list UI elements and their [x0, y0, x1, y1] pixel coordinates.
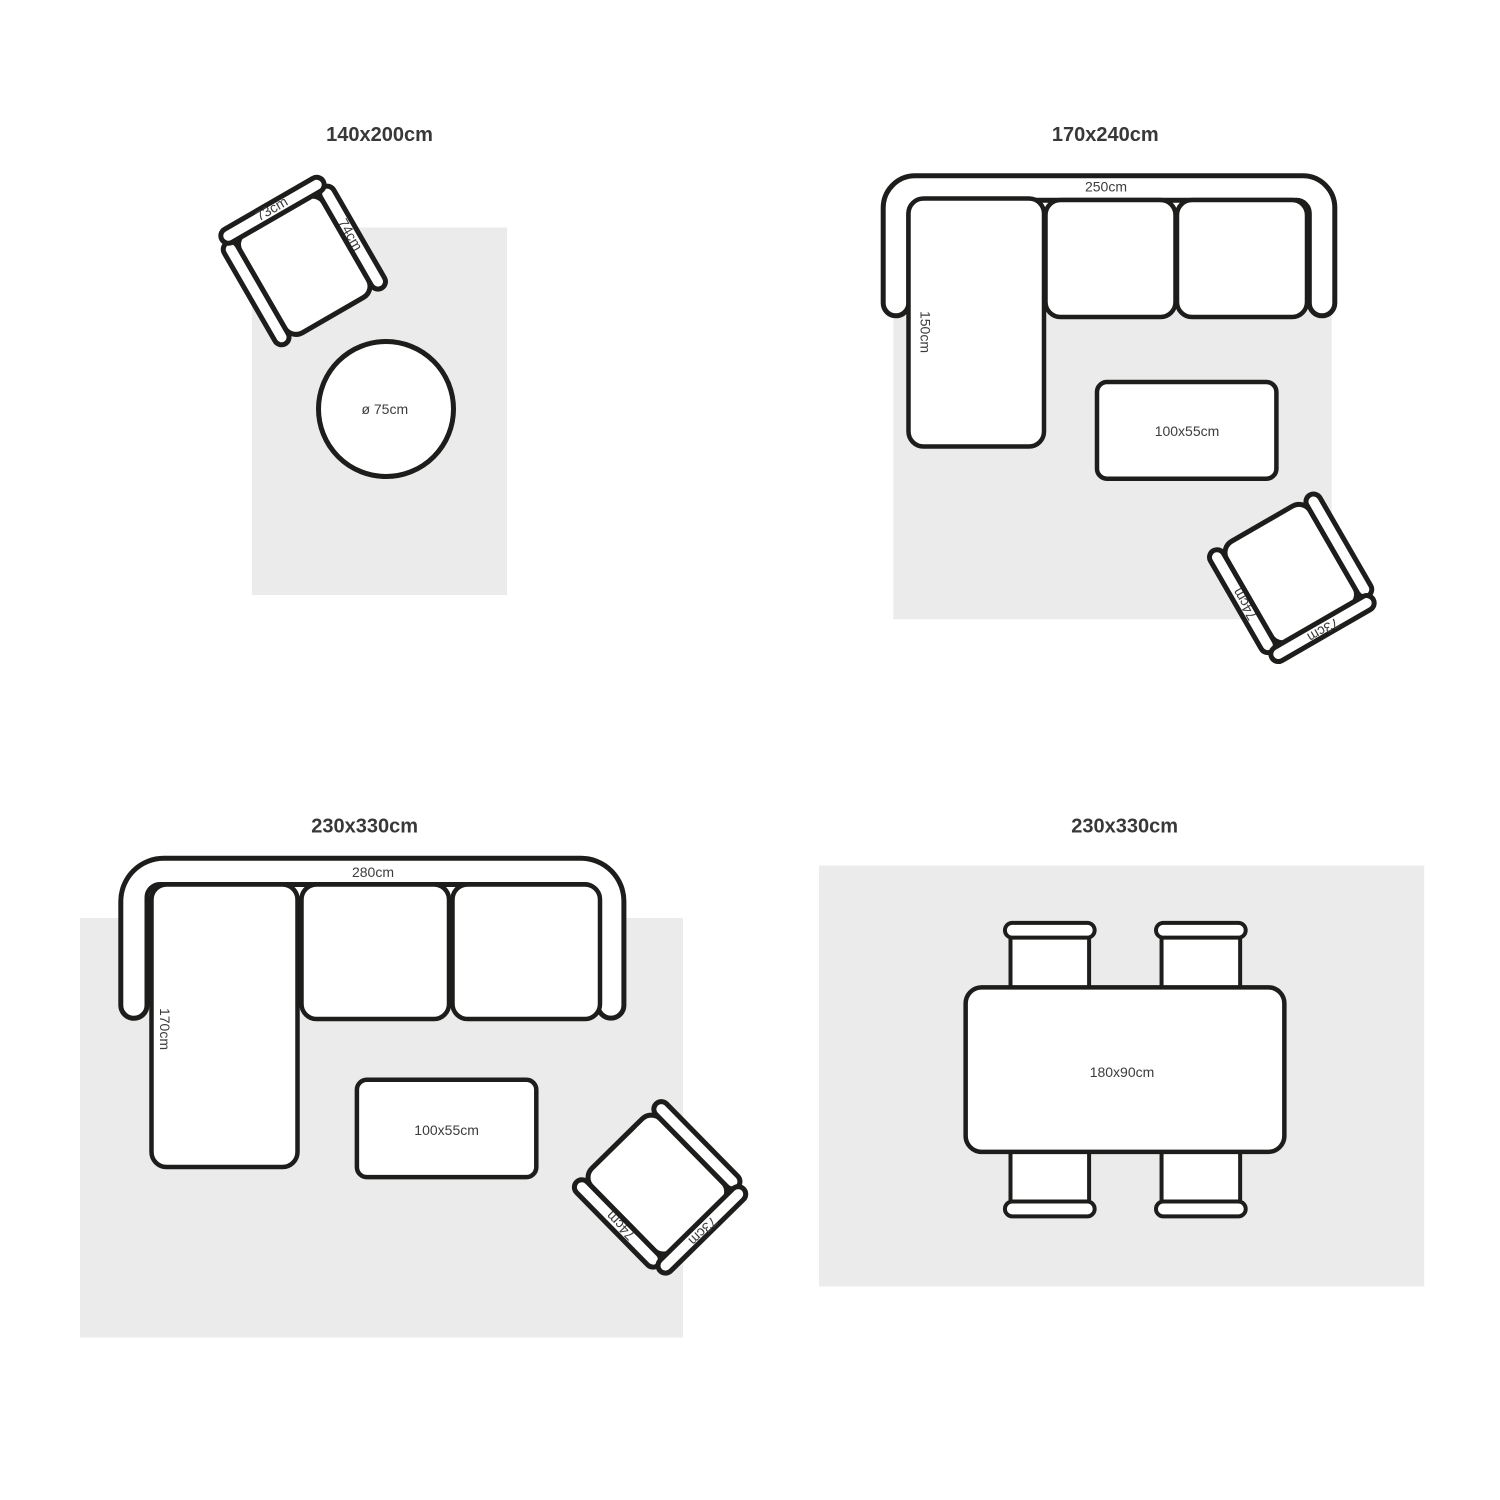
svg-text:170x240cm: 170x240cm	[1052, 124, 1159, 146]
svg-text:140x200cm: 140x200cm	[326, 124, 433, 146]
svg-text:180x90cm: 180x90cm	[1090, 1064, 1155, 1080]
svg-text:250cm: 250cm	[1085, 179, 1127, 195]
svg-text:ø 75cm: ø 75cm	[361, 401, 408, 417]
svg-text:170cm: 170cm	[157, 1008, 173, 1050]
svg-text:230x330cm: 230x330cm	[1071, 816, 1178, 838]
svg-text:150cm: 150cm	[917, 311, 933, 353]
svg-text:230x330cm: 230x330cm	[311, 816, 418, 838]
svg-text:100x55cm: 100x55cm	[1155, 423, 1220, 439]
svg-text:280cm: 280cm	[352, 864, 394, 880]
svg-text:100x55cm: 100x55cm	[414, 1122, 479, 1138]
